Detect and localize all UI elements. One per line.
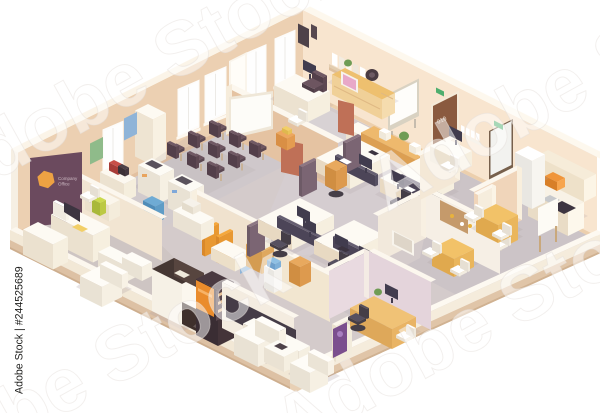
svg-text:Company: Company [58, 176, 78, 181]
svg-text:Office: Office [58, 182, 70, 187]
svg-text:Adobe Stock | #244525689: Adobe Stock | #244525689 [14, 266, 26, 394]
